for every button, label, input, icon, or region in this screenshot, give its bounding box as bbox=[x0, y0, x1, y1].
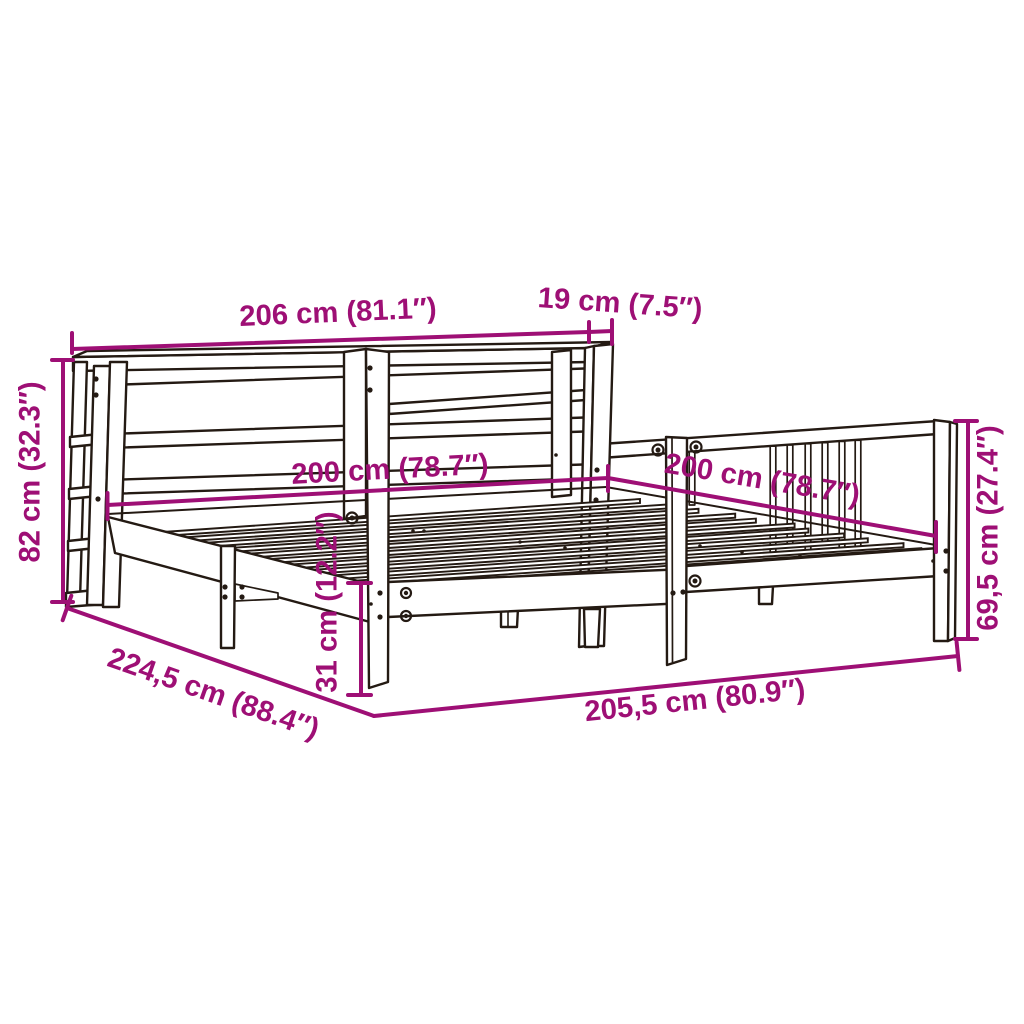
svg-text:69,5 cm (27.4″): 69,5 cm (27.4″) bbox=[973, 425, 1005, 630]
svg-text:31 cm (12.2″): 31 cm (12.2″) bbox=[312, 511, 344, 692]
svg-text:82 cm (32.3″): 82 cm (32.3″) bbox=[15, 381, 47, 562]
